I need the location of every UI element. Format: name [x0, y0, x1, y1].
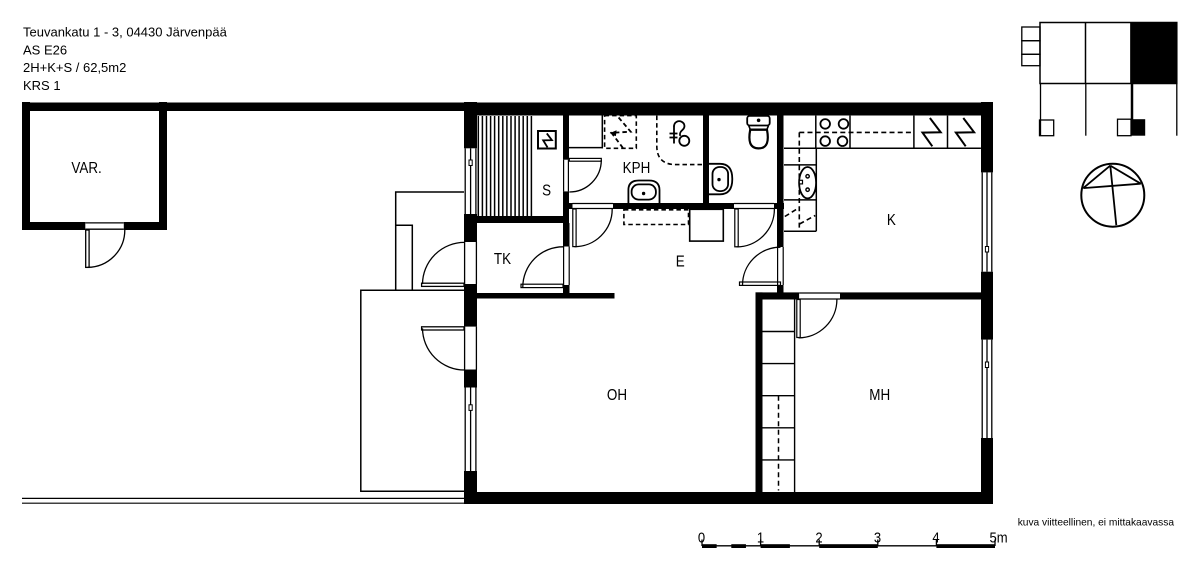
svg-text:K: K — [887, 212, 896, 229]
svg-text:5m: 5m — [989, 530, 1007, 546]
svg-text:4: 4 — [932, 530, 940, 546]
svg-text:VAR.: VAR. — [71, 160, 101, 177]
svg-text:0: 0 — [698, 530, 706, 546]
svg-text:TK: TK — [494, 251, 511, 268]
svg-text:2H+K+S / 62,5m2: 2H+K+S / 62,5m2 — [23, 60, 126, 75]
svg-text:MH: MH — [869, 387, 890, 404]
svg-text:1: 1 — [757, 530, 764, 546]
svg-text:KPH: KPH — [623, 160, 651, 177]
svg-text:3: 3 — [874, 530, 882, 546]
svg-text:KRS 1: KRS 1 — [23, 78, 61, 93]
svg-text:Teuvankatu 1 - 3, 04430 Järven: Teuvankatu 1 - 3, 04430 Järvenpää — [23, 25, 228, 40]
svg-text:E: E — [676, 254, 685, 271]
svg-text:OH: OH — [607, 387, 627, 404]
svg-text:kuva viitteellinen, ei mittaka: kuva viitteellinen, ei mittakaavassa — [1018, 518, 1175, 529]
svg-text:S: S — [542, 182, 551, 199]
svg-text:2: 2 — [815, 530, 822, 546]
svg-text:AS E26: AS E26 — [23, 42, 67, 57]
